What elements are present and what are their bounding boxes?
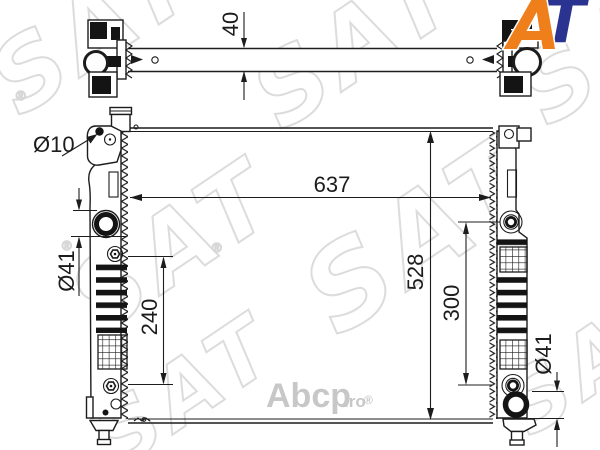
right-drain-tip xyxy=(510,440,524,445)
radiator-technical-drawing: SAT SAT SAT SAT SAT SAT SAT ® ® ® ® Abcp… xyxy=(0,0,600,450)
left-tank xyxy=(87,108,132,445)
dim-l41-arrow-down xyxy=(76,200,82,211)
right-tank-serrated-edge xyxy=(490,131,498,419)
site-watermark: Abcp .ro ® xyxy=(266,377,373,415)
left-tank-oil-cooler xyxy=(98,335,127,369)
site-suffix-text: .ro xyxy=(344,392,366,411)
right-tank-oil-cooler-b xyxy=(500,340,527,369)
right-tank-oil-cooler-a xyxy=(500,247,527,272)
bracket-hole-center xyxy=(109,138,111,140)
dim-300-label: 300 xyxy=(439,285,464,322)
bolt-ring xyxy=(506,217,515,226)
inlet-pipe-ring xyxy=(97,215,116,234)
bolt-center xyxy=(114,253,117,256)
dim-l41-label: Ø41 xyxy=(54,250,79,292)
left-tank-foot xyxy=(87,397,94,418)
dim-637-arrow-left xyxy=(130,194,142,201)
brand-logo: T A xyxy=(503,0,590,66)
right-upper-bolt xyxy=(500,211,522,233)
dim-528-arrow-up xyxy=(427,131,434,143)
dim-528-label: 528 xyxy=(403,254,428,291)
registered-mark: ® xyxy=(16,88,26,103)
left-fitting-lower-block xyxy=(92,76,111,94)
dim-40-label: 40 xyxy=(218,12,243,36)
registered-mark: ® xyxy=(212,240,222,255)
top-view-bar-fill xyxy=(128,49,497,72)
drawing-canvas: SAT SAT SAT SAT SAT SAT SAT ® ® ® ® Abcp… xyxy=(0,0,600,450)
dim-637-label: 637 xyxy=(314,172,351,197)
top-mount-bracket xyxy=(87,126,121,165)
right-tank-stripes-b xyxy=(497,274,527,338)
left-fitting-upper-block xyxy=(90,22,107,39)
dim-240-label: 240 xyxy=(137,299,162,336)
site-registered-mark: ® xyxy=(364,393,373,407)
right-top-bracket-tab xyxy=(517,128,531,141)
left-fitting-upper-tab xyxy=(111,27,120,40)
logo-letter-a: A xyxy=(503,0,561,66)
right-tank-stripes-a xyxy=(497,233,527,247)
outlet-pipe-ring xyxy=(506,394,527,415)
left-drain-tip xyxy=(98,440,111,445)
bolt-center xyxy=(110,385,113,388)
left-tank-small-dot xyxy=(103,410,109,416)
dim-40-arrow-down xyxy=(241,38,247,48)
site-name-text: Abcp xyxy=(266,377,351,415)
dim-d10-label: Ø10 xyxy=(33,132,75,157)
bolt-ring xyxy=(508,381,517,390)
left-tank-stripes xyxy=(96,262,127,333)
dim-528-arrow-down xyxy=(427,408,434,420)
right-fitting-lower-block xyxy=(504,76,523,93)
sat-watermark: SAT xyxy=(50,137,298,355)
left-fitting-pipe-circle xyxy=(85,52,108,75)
dim-r41-label: Ø41 xyxy=(531,333,556,375)
dim-300-arrow-down xyxy=(463,373,469,385)
